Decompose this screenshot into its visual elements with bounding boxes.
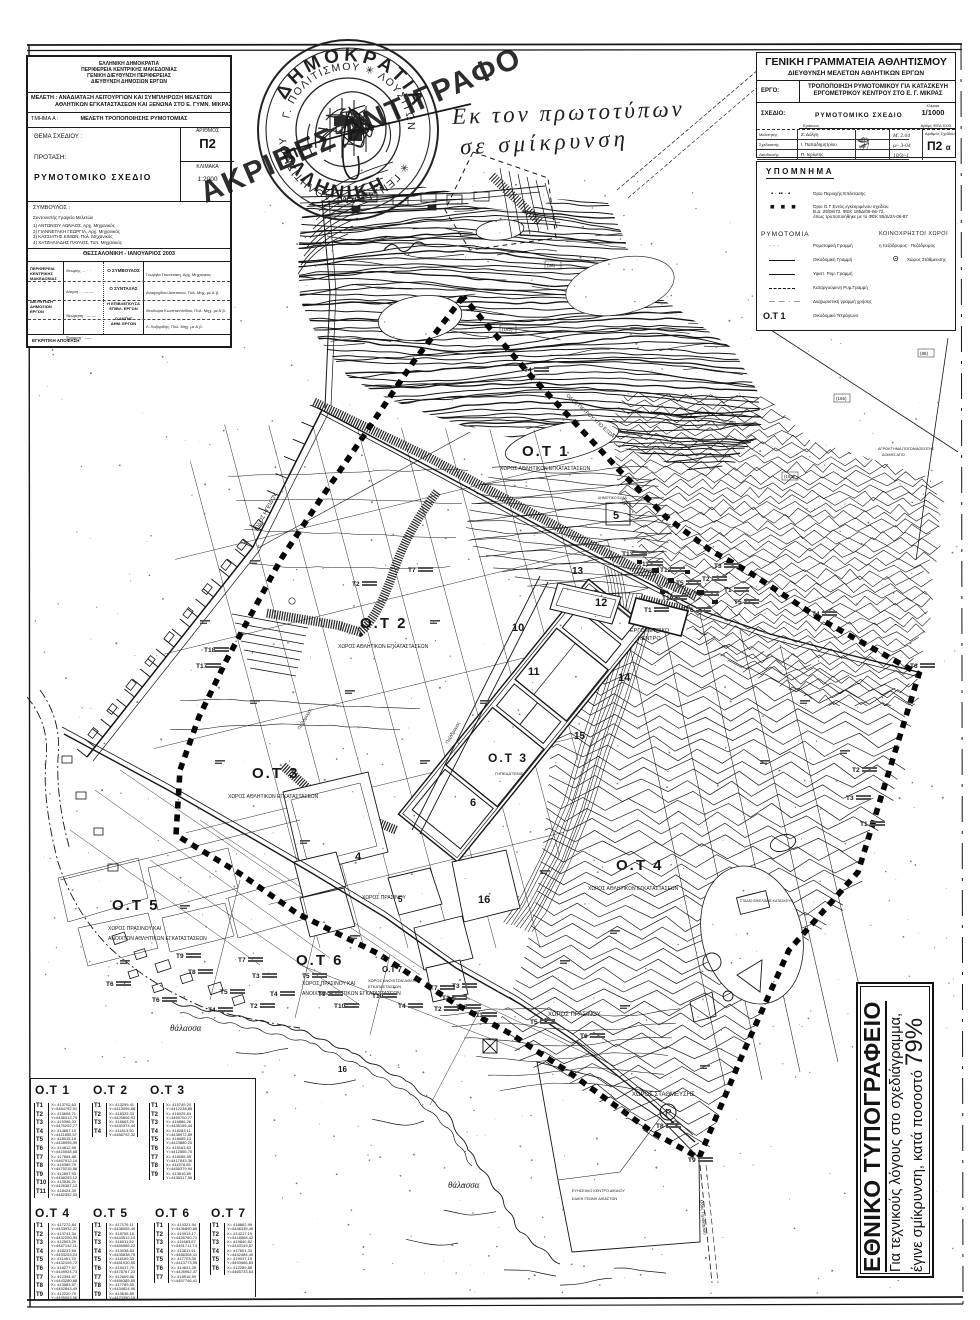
svg-text:Τ4: Τ4 xyxy=(270,991,278,998)
svg-text:Τ1: Τ1 xyxy=(442,995,450,1002)
svg-text:Τ12: Τ12 xyxy=(660,567,672,574)
svg-text:Ο.Τ 5: Ο.Τ 5 xyxy=(112,897,160,914)
svg-text:ΑΓΡΟΚΤΗΜΑ ΠΩΓΩΝΙΑΣΕΩΤΗΣ: ΑΓΡΟΚΤΗΜΑ ΠΩΓΩΝΙΑΣΕΩΤΗΣ xyxy=(878,447,935,451)
svg-text:ΧΩΡΟΣ ΑΘΛΗΤΙΚΩΝ ΕΓΚΑΤΑΣΤΑΣΕΩΝ: ΧΩΡΟΣ ΑΘΛΗΤΙΚΩΝ ΕΓΚΑΤΑΣΤΑΣΕΩΝ xyxy=(500,466,591,472)
svg-text:ΔΟΜΗΣ ΑΠΟ: ΔΟΜΗΣ ΑΠΟ xyxy=(882,453,905,457)
svg-text:Τ4: Τ4 xyxy=(208,1007,216,1014)
svg-text:Τ11: Τ11 xyxy=(638,561,649,568)
svg-text:ΧΩΡΟΣ ΑΘΛΗΤΙΚΩΝ ΕΓΚΑΤΑΣΤΑΣΕΩΝ: ΧΩΡΟΣ ΑΘΛΗΤΙΚΩΝ ΕΓΚΑΤΑΣΤΑΣΕΩΝ xyxy=(588,886,679,892)
svg-text:Τ4: Τ4 xyxy=(398,1003,406,1010)
svg-text:ΧΩΡΟΣ ΑΝΟΙΧΤΩΝ ΑΘΛΗΤ.: ΧΩΡΟΣ ΑΝΟΙΧΤΩΝ ΑΘΛΗΤ. xyxy=(368,978,419,983)
svg-text:Ο.Τ 2: Ο.Τ 2 xyxy=(360,615,408,632)
svg-text:θάλασσα: θάλασσα xyxy=(448,1180,480,1190)
svg-text:Οδός Γερακαρίου: Οδός Γερακαρίου xyxy=(699,1199,709,1235)
svg-text:Τ9: Τ9 xyxy=(176,953,184,960)
svg-text:Τ10: Τ10 xyxy=(372,993,384,1000)
svg-text:Ο.Τ 6: Ο.Τ 6 xyxy=(296,952,344,969)
svg-text:(36): (36) xyxy=(547,263,556,268)
svg-text:Τ5: Τ5 xyxy=(220,989,228,996)
svg-text:Τ6: Τ6 xyxy=(106,981,114,988)
svg-text:Τ6: Τ6 xyxy=(686,607,694,614)
svg-text:15: 15 xyxy=(574,731,586,742)
svg-text:Τ17: Τ17 xyxy=(196,663,208,670)
svg-text:Τ4: Τ4 xyxy=(812,611,820,618)
svg-text:Τ1: Τ1 xyxy=(724,587,732,594)
svg-text:ΧΩΡΟΣ ΣΤΑΘΜΕΥΣΗΣ: ΧΩΡΟΣ ΣΤΑΘΜΕΥΣΗΣ xyxy=(632,1092,695,1098)
svg-text:Τ9: Τ9 xyxy=(694,591,702,598)
svg-text:(165): (165) xyxy=(836,396,847,401)
svg-text:Τ1: Τ1 xyxy=(860,821,868,828)
svg-text:Τ2: Τ2 xyxy=(434,1006,442,1013)
svg-text:ΧΩΡΟΣ ΠΡΑΣΙΝΟΥ: ΧΩΡΟΣ ΠΡΑΣΙΝΟΥ xyxy=(548,1012,601,1018)
svg-text:ΚΕΝΤΡΟ: ΚΕΝΤΡΟ xyxy=(638,636,661,642)
svg-text:ΓΗΠΕΔΑ ΤΕΝΙΣ: ΓΗΠΕΔΑ ΤΕΝΙΣ xyxy=(495,771,524,776)
svg-text:Τ6: Τ6 xyxy=(580,1033,588,1040)
svg-text:5: 5 xyxy=(398,895,403,904)
svg-text:Τ12: Τ12 xyxy=(456,1004,468,1011)
svg-text:ΕΔΙΚΗ ΓΕΩΝΗ ΔΙΚΑΣΤΩΝ: ΕΔΙΚΗ ΓΕΩΝΗ ΔΙΚΑΣΤΩΝ xyxy=(572,1197,617,1201)
svg-text:Ο.Τ 1: Ο.Τ 1 xyxy=(522,443,570,460)
svg-text:Τ6: Τ6 xyxy=(910,663,918,670)
svg-text:Τ2: Τ2 xyxy=(352,581,360,588)
svg-text:Τ2: Τ2 xyxy=(250,1003,258,1010)
svg-text:Τ2: Τ2 xyxy=(852,767,860,774)
svg-text:ΧΩΡΟΣ ΠΡΑΣΙΝΟΥ ΚΑΙ: ΧΩΡΟΣ ΠΡΑΣΙΝΟΥ ΚΑΙ xyxy=(302,981,355,987)
svg-text:Τ3: Τ3 xyxy=(252,973,260,980)
svg-text:Πεζόδρομος: Πεζόδρομος xyxy=(296,706,314,731)
svg-text:16: 16 xyxy=(478,894,490,906)
svg-text:11: 11 xyxy=(528,666,540,678)
svg-text:Τ7: Τ7 xyxy=(408,567,416,574)
svg-text:Τ3: Τ3 xyxy=(452,983,460,990)
svg-text:(163): (163) xyxy=(784,474,795,479)
svg-text:Ο.Τ 3: Ο.Τ 3 xyxy=(488,751,528,765)
svg-text:Τ8: Τ8 xyxy=(656,1123,664,1130)
svg-text:16: 16 xyxy=(338,1065,347,1074)
svg-text:6: 6 xyxy=(470,797,476,809)
svg-text:P: P xyxy=(665,1108,672,1119)
svg-text:Τ6: Τ6 xyxy=(152,997,160,1004)
svg-text:Τ7: Τ7 xyxy=(238,957,246,964)
svg-text:ΧΩΡΟΣ ΑΘΛΗΤΙΚΩΝ ΕΓΚΑΤΑΣΤΑΣΕΩΝ: ΧΩΡΟΣ ΑΘΛΗΤΙΚΩΝ ΕΓΚΑΤΑΣΤΑΣΕΩΝ xyxy=(338,644,429,650)
svg-text:ΧΩΡΟΣ ΑΘΛΗΤΙΚΩΝ ΕΓΚΑΤΑΣΤΑΣΕΩΝ: ΧΩΡΟΣ ΑΘΛΗΤΙΚΩΝ ΕΓΚΑΤΑΣΤΑΣΕΩΝ xyxy=(228,794,319,800)
svg-text:Τ5: Τ5 xyxy=(734,599,742,606)
svg-text:Τ1: Τ1 xyxy=(644,607,652,614)
svg-text:Τ5: Τ5 xyxy=(302,973,310,980)
svg-text:Τ7: Τ7 xyxy=(430,985,438,992)
svg-text:5: 5 xyxy=(613,510,619,522)
svg-text:Τ11: Τ11 xyxy=(472,1012,483,1019)
svg-text:ΕΡΓΟΜΕΤΡΙΚΟ: ΕΡΓΟΜΕΤΡΙΚΟ xyxy=(630,628,670,634)
svg-text:Τ5: Τ5 xyxy=(530,1019,538,1026)
svg-text:Τ3: Τ3 xyxy=(846,795,854,802)
svg-text:13: 13 xyxy=(572,566,584,577)
svg-text:Τ2: Τ2 xyxy=(702,576,710,583)
svg-text:Τ3: Τ3 xyxy=(714,563,722,570)
svg-text:Τ9: Τ9 xyxy=(688,1157,696,1164)
svg-text:Τ4: Τ4 xyxy=(524,367,532,374)
svg-text:θάλασσα: θάλασσα xyxy=(170,1023,202,1033)
svg-text:Τ18: Τ18 xyxy=(204,647,216,654)
svg-text:Τ9: Τ9 xyxy=(318,991,326,998)
svg-text:14: 14 xyxy=(618,672,631,684)
svg-text:Τ5: Τ5 xyxy=(676,580,684,587)
svg-text:ΑΝΟΙΧΤΩΝ ΑΘΛΗΤΙΚΩΝ ΕΓΚΑΤΑΣΤΑΣΕ: ΑΝΟΙΧΤΩΝ ΑΘΛΗΤΙΚΩΝ ΕΓΚΑΤΑΣΤΑΣΕΩΝ xyxy=(108,936,207,942)
svg-text:Ο.Τ 7: Ο.Τ 7 xyxy=(382,965,403,974)
svg-text:ΔΗΜΟΤΙΚΟ ΕΛΛΑ: ΔΗΜΟΤΙΚΟ ΕΛΛΑ xyxy=(598,496,628,500)
svg-text:ΣΤΑΔΙΟ ΒΙΚΕΛΙΔΗΣ ΚΑΤΑΣΚΕΥΗ: ΣΤΑΔΙΟ ΒΙΚΕΛΙΔΗΣ ΚΑΤΑΣΚΕΥΗ xyxy=(740,899,793,903)
svg-text:12: 12 xyxy=(595,597,607,609)
svg-text:Τ8: Τ8 xyxy=(188,969,196,976)
svg-text:Ο.Τ 4: Ο.Τ 4 xyxy=(616,857,664,874)
svg-text:Τ10: Τ10 xyxy=(334,1003,346,1010)
svg-text:10: 10 xyxy=(512,622,524,634)
svg-text:4: 4 xyxy=(355,851,362,863)
svg-text:ΕΓΚΑΤΑΣΤΑΣΕΩΝ: ΕΓΚΑΤΑΣΤΑΣΕΩΝ xyxy=(368,984,401,989)
svg-text:Τ13: Τ13 xyxy=(622,551,634,558)
svg-text:(162): (162) xyxy=(502,327,513,332)
svg-text:Ο.Τ 3: Ο.Τ 3 xyxy=(252,765,300,782)
svg-text:ΟΔΟΣ ΗΓΕΙΔΟΥ: ΟΔΟΣ ΗΓΕΙΔΟΥ xyxy=(254,492,278,531)
svg-text:ΕΥΗΣΕΙΛΙΟ ΚΕΝΤΡΟ ΔΙΚΑΙΟΥ: ΕΥΗΣΕΙΛΙΟ ΚΕΝΤΡΟ ΔΙΚΑΙΟΥ xyxy=(572,1189,625,1193)
svg-text:ΧΩΡΟΣ ΠΡΑΣΙΝΟΥ ΚΑΙ: ΧΩΡΟΣ ΠΡΑΣΙΝΟΥ ΚΑΙ xyxy=(108,926,161,932)
svg-text:Τ10: Τ10 xyxy=(662,595,674,602)
svg-text:(88): (88) xyxy=(920,351,929,356)
